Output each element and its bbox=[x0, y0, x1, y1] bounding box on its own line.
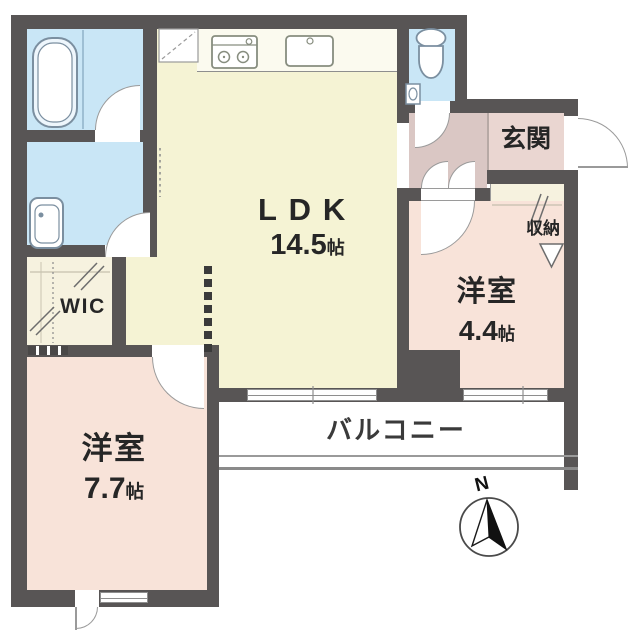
bedroom-small-label: 洋室 bbox=[417, 278, 557, 307]
ldk-size: 14.5帖 bbox=[235, 231, 380, 260]
entrance-label: 玄関 bbox=[495, 127, 557, 152]
floor-plan: LDK 14.5帖 洋室 7.7帖 洋室 4.4帖 玄関 WIC 収納 バルコニ… bbox=[0, 0, 640, 640]
ldk-dashed-partition bbox=[204, 266, 212, 352]
balcony-label: バルコニー bbox=[316, 417, 476, 443]
bedroom-large-size: 7.7帖 bbox=[44, 474, 184, 504]
stove-icon bbox=[212, 36, 257, 68]
washbasin-icon bbox=[30, 198, 63, 248]
compass-icon bbox=[460, 498, 518, 556]
bedroom-small-size: 4.4帖 bbox=[417, 317, 557, 345]
storage-door-marker bbox=[540, 244, 563, 267]
wic-label: WIC bbox=[58, 296, 108, 317]
storage-label: 収納 bbox=[520, 220, 566, 237]
bedroom-large-label: 洋室 bbox=[44, 433, 184, 464]
bathtub-icon bbox=[33, 38, 77, 127]
kitchen-sink-icon bbox=[286, 36, 333, 66]
refrigerator-space-icon bbox=[159, 29, 198, 62]
ldk-label: LDK bbox=[235, 194, 380, 225]
toilet-icon bbox=[406, 29, 446, 104]
